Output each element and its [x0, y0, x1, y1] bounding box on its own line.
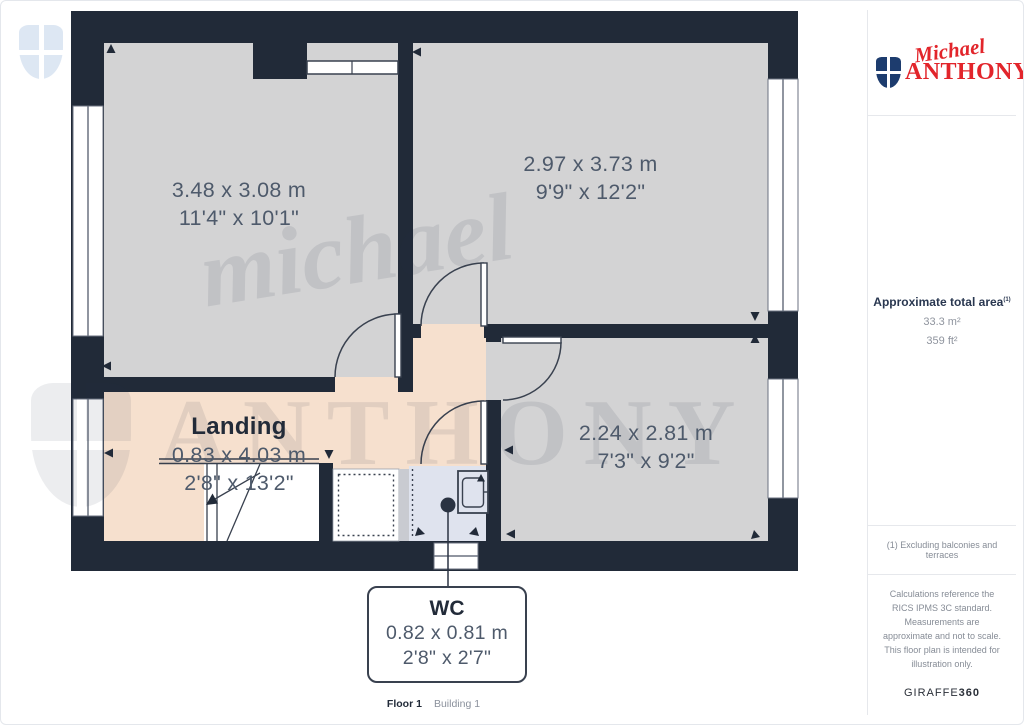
total-area-title: Approximate total area(1): [873, 295, 1010, 309]
area-footnote: (1) Excluding balconies and terraces: [868, 526, 1016, 575]
room-top-left-label: 3.48 x 3.08 m 11'4" x 10'1": [104, 177, 374, 233]
toilet-icon: [458, 471, 488, 513]
wc-callout-dot: [441, 498, 456, 513]
room-dimensions-metric: 2.97 x 3.73 m: [413, 151, 768, 179]
room-dimensions-metric: 2.24 x 2.81 m: [506, 420, 786, 448]
building-label: Building 1: [434, 698, 480, 710]
window-bottom: [434, 543, 478, 569]
giraffe360-brand: GIRAFFE360: [881, 685, 1003, 702]
brand-shield-icon: [876, 57, 901, 88]
footnote-reference: (1): [1003, 297, 1010, 303]
disclaimer-section: Calculations reference the RICS IPMS 3C …: [868, 575, 1016, 715]
room-dimensions-metric: 3.48 x 3.08 m: [104, 177, 374, 205]
floor-label: Floor 1: [387, 698, 422, 710]
window-top-recess: [307, 61, 398, 74]
room-dimensions-metric: 0.83 x 4.03 m: [121, 442, 357, 470]
total-area-section: Approximate total area(1) 33.3 m² 359 ft…: [868, 116, 1016, 526]
room-top-right-label: 2.97 x 3.73 m 9'9" x 12'2": [413, 151, 768, 207]
agency-logo: Michael ANTHONY: [868, 10, 1016, 116]
brand-word: GIRAFFE: [904, 687, 959, 699]
room-dimensions-imperial: 2'8" x 2'7": [369, 646, 525, 670]
room-dimensions-metric: 0.82 x 0.81 m: [369, 621, 525, 645]
room-bottom-right-label: 2.24 x 2.81 m 7'3" x 9'2": [506, 420, 786, 476]
room-dimensions-imperial: 11'4" x 10'1": [104, 205, 374, 233]
room-name: Landing: [121, 411, 357, 442]
landing-label: Landing 0.83 x 4.03 m 2'8" x 13'2": [121, 411, 357, 498]
room-name: WC: [369, 596, 525, 621]
room-dimensions-imperial: 9'9" x 12'2": [413, 179, 768, 207]
room-dimensions-imperial: 7'3" x 9'2": [506, 448, 786, 476]
total-area-metric: 33.3 m²: [923, 316, 960, 328]
floor-indicator: Floor 1Building 1: [301, 698, 566, 710]
disclaimer-text: Calculations reference the RICS IPMS 3C …: [881, 588, 1003, 672]
window-right-upper: [768, 79, 798, 311]
window-left-upper: [73, 106, 103, 336]
floorplan-page: michael ANTHONY 3.48 x 3.08 m 11'4" x 10…: [0, 0, 1024, 725]
room-dimensions-imperial: 2'8" x 13'2": [121, 470, 357, 498]
info-sidebar: Michael ANTHONY Approximate total area(1…: [867, 10, 1016, 715]
brand-number: 360: [959, 687, 980, 699]
total-area-imperial: 359 ft²: [926, 335, 957, 347]
wc-callout-box: WC 0.82 x 0.81 m 2'8" x 2'7": [367, 586, 527, 683]
